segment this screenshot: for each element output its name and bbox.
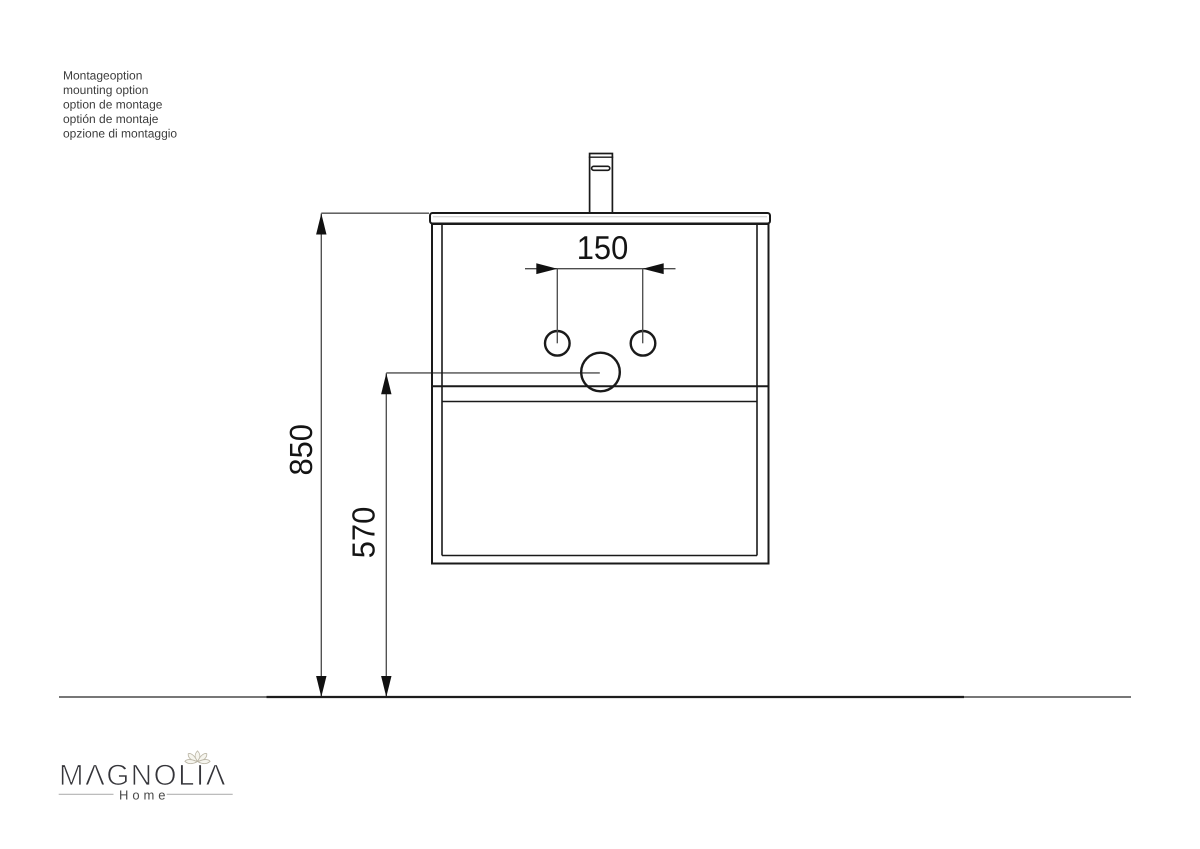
- svg-text:optión de montaje: optión de montaje: [63, 112, 159, 126]
- svg-text:570: 570: [346, 507, 382, 559]
- svg-text:opzione di montaggio: opzione di montaggio: [63, 126, 177, 140]
- svg-text:Montageoption: Montageoption: [63, 69, 142, 83]
- svg-text:mounting option: mounting option: [63, 83, 148, 97]
- svg-text:option de montage: option de montage: [63, 97, 163, 111]
- svg-text:150: 150: [577, 229, 629, 266]
- svg-text:850: 850: [283, 424, 319, 476]
